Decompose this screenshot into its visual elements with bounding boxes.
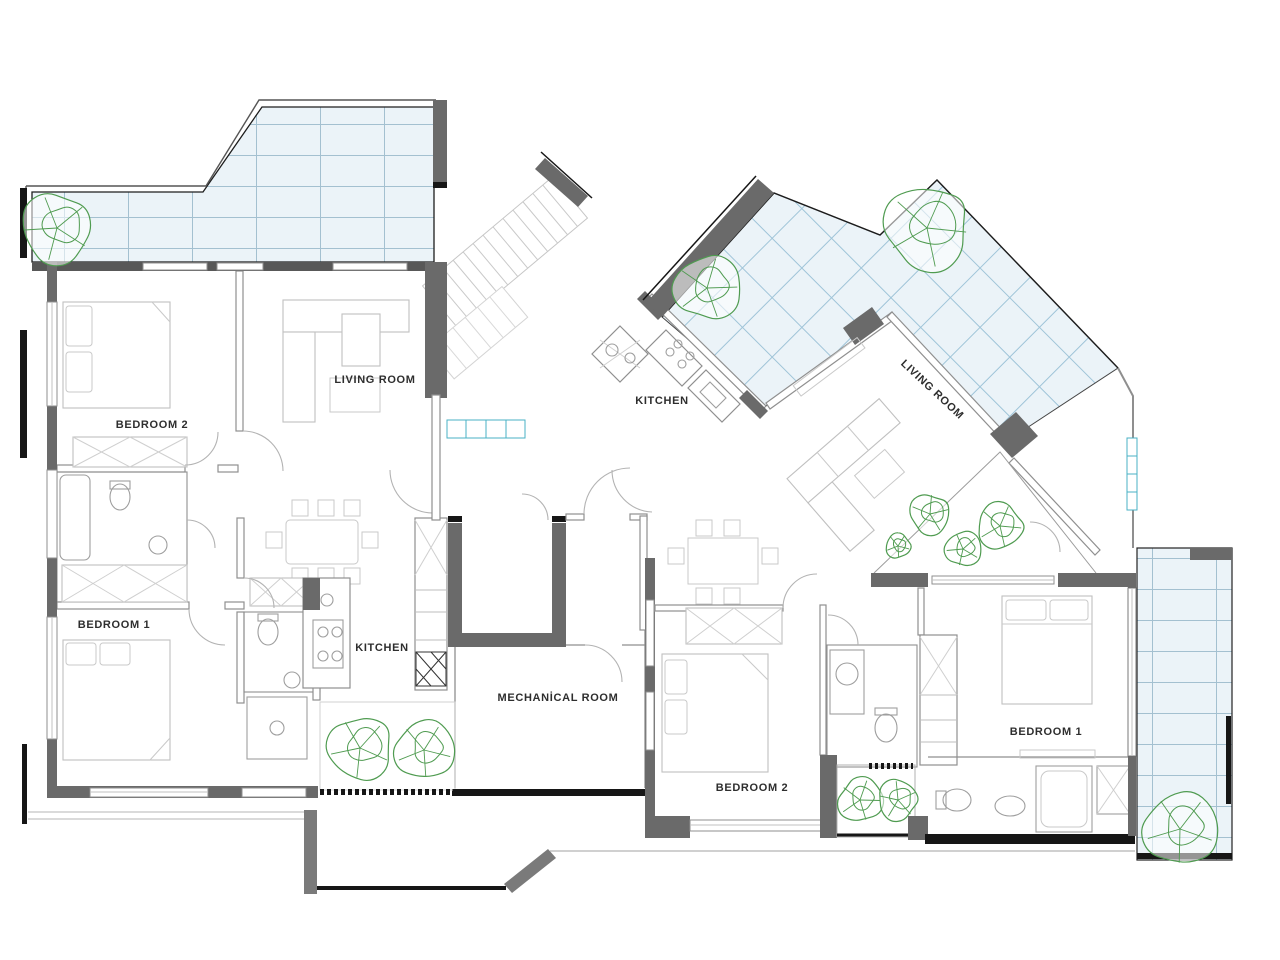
tree [944, 531, 981, 565]
floor-plan-drawing: LIVING ROOM BEDROOM 2 BEDROOM 1 KITCHEN … [0, 0, 1280, 960]
tree [910, 495, 949, 536]
label-right-bedroom-2: BEDROOM 2 [716, 782, 789, 794]
floor-plan-page: LIVING ROOM BEDROOM 2 BEDROOM 1 KITCHEN … [0, 0, 1280, 960]
label-right-kitchen: KITCHEN [635, 395, 689, 407]
tree [326, 719, 389, 781]
staircase [423, 152, 592, 379]
tree [393, 720, 454, 777]
label-left-bedroom-2: BEDROOM 2 [116, 419, 189, 431]
elevator-shaft [448, 494, 566, 647]
tree [979, 502, 1024, 550]
label-left-bedroom-1: BEDROOM 1 [78, 619, 151, 631]
label-right-bedroom-1: BEDROOM 1 [1010, 726, 1083, 738]
left-kitchen-units [303, 518, 447, 690]
tree [838, 777, 884, 821]
tree [886, 533, 911, 558]
terrace-top-left [26, 100, 447, 262]
label-mechanical-room: MECHANİCAL ROOM [498, 691, 619, 704]
core-hall-walls [452, 468, 647, 796]
tree [880, 779, 918, 821]
label-left-living-room: LIVING ROOM [334, 374, 415, 386]
label-left-kitchen: KITCHEN [355, 642, 409, 654]
